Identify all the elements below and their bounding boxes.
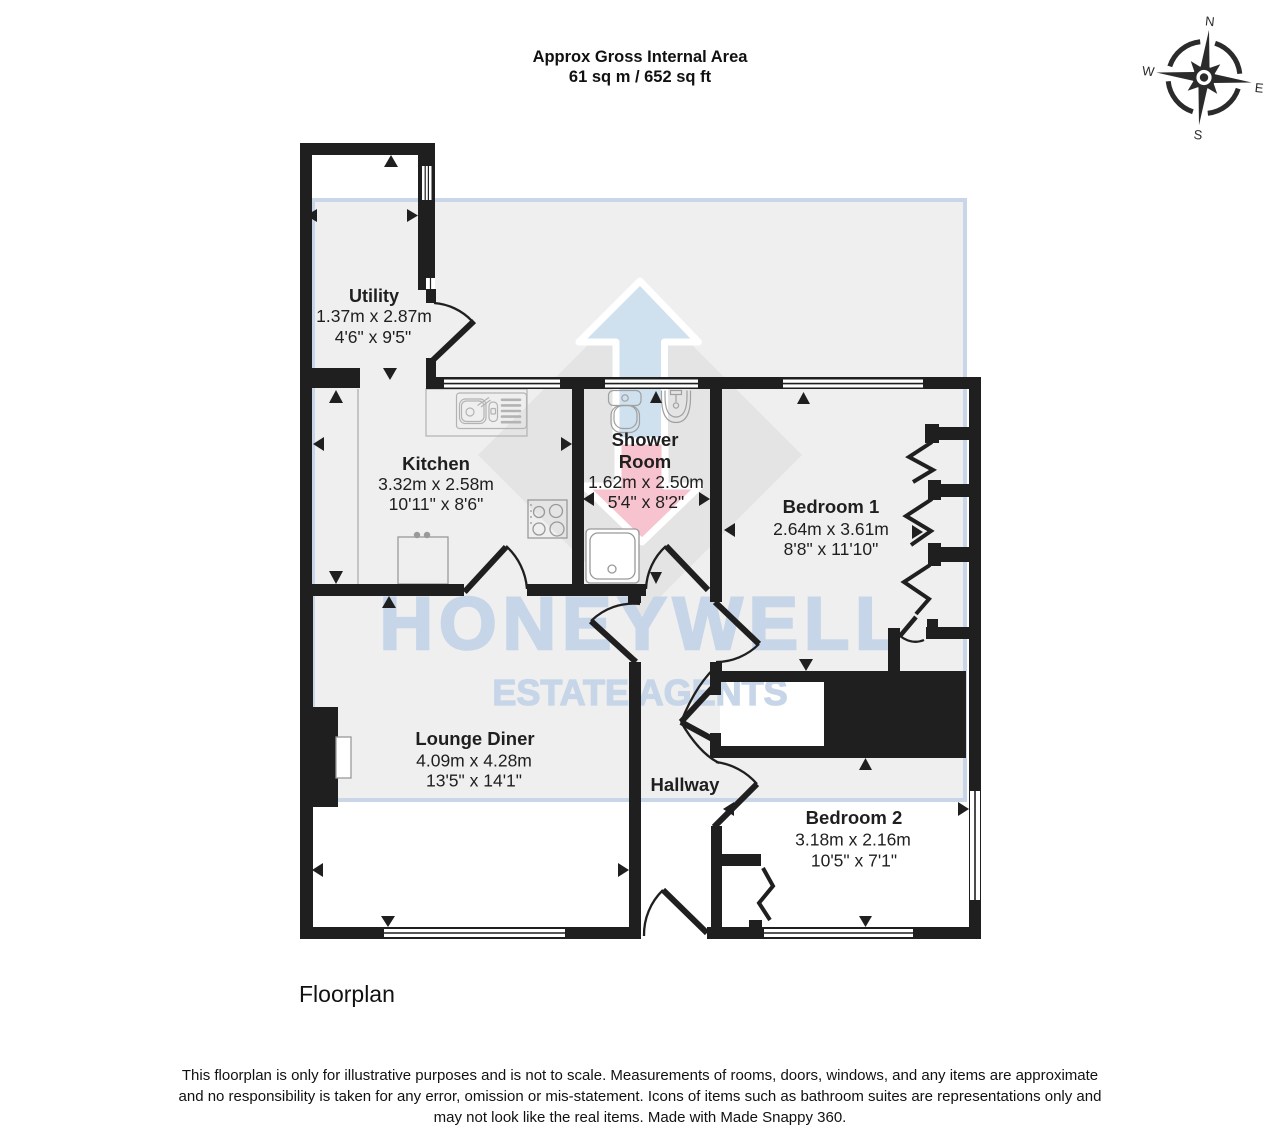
svg-text:61 sq m / 652 sq ft: 61 sq m / 652 sq ft [569,68,712,86]
svg-text:This floorplan is only for ill: This floorplan is only for illustrative … [182,1067,1098,1084]
svg-text:S: S [1193,127,1204,143]
svg-text:Bedroom 2: Bedroom 2 [806,807,903,828]
svg-text:N: N [1204,13,1215,29]
svg-text:4.09m x 4.28m: 4.09m x 4.28m [416,751,532,771]
svg-text:Floorplan: Floorplan [299,981,395,1007]
svg-text:may not look like the real ite: may not look like the real items. Made w… [434,1109,847,1126]
svg-text:4'6" x 9'5": 4'6" x 9'5" [335,327,412,347]
svg-text:1.37m x 2.87m: 1.37m x 2.87m [316,306,432,326]
svg-text:Bedroom 1: Bedroom 1 [783,496,880,517]
svg-text:E: E [1254,80,1265,96]
svg-text:5'4" x 8'2": 5'4" x 8'2" [608,492,685,512]
svg-text:Kitchen: Kitchen [402,453,470,474]
svg-text:Hallway: Hallway [651,774,721,795]
svg-text:Room: Room [619,451,671,472]
svg-text:8'8" x 11'10": 8'8" x 11'10" [784,539,879,559]
svg-text:Utility: Utility [349,286,399,306]
svg-text:13'5" x 14'1": 13'5" x 14'1" [426,771,522,791]
svg-text:2.64m x 3.61m: 2.64m x 3.61m [773,519,889,539]
svg-text:3.18m x 2.16m: 3.18m x 2.16m [795,830,911,850]
svg-text:Approx Gross Internal Area: Approx Gross Internal Area [533,48,749,66]
svg-text:Shower: Shower [612,429,679,450]
svg-text:1.62m x 2.50m: 1.62m x 2.50m [588,472,704,492]
svg-text:10'11" x 8'6": 10'11" x 8'6" [389,494,484,514]
svg-text:3.32m x 2.58m: 3.32m x 2.58m [378,474,494,494]
svg-text:and no responsibility is taken: and no responsibility is taken for any e… [179,1088,1102,1105]
svg-text:Lounge Diner: Lounge Diner [415,728,534,749]
svg-text:10'5" x 7'1": 10'5" x 7'1" [811,851,897,871]
svg-text:W: W [1141,63,1155,79]
